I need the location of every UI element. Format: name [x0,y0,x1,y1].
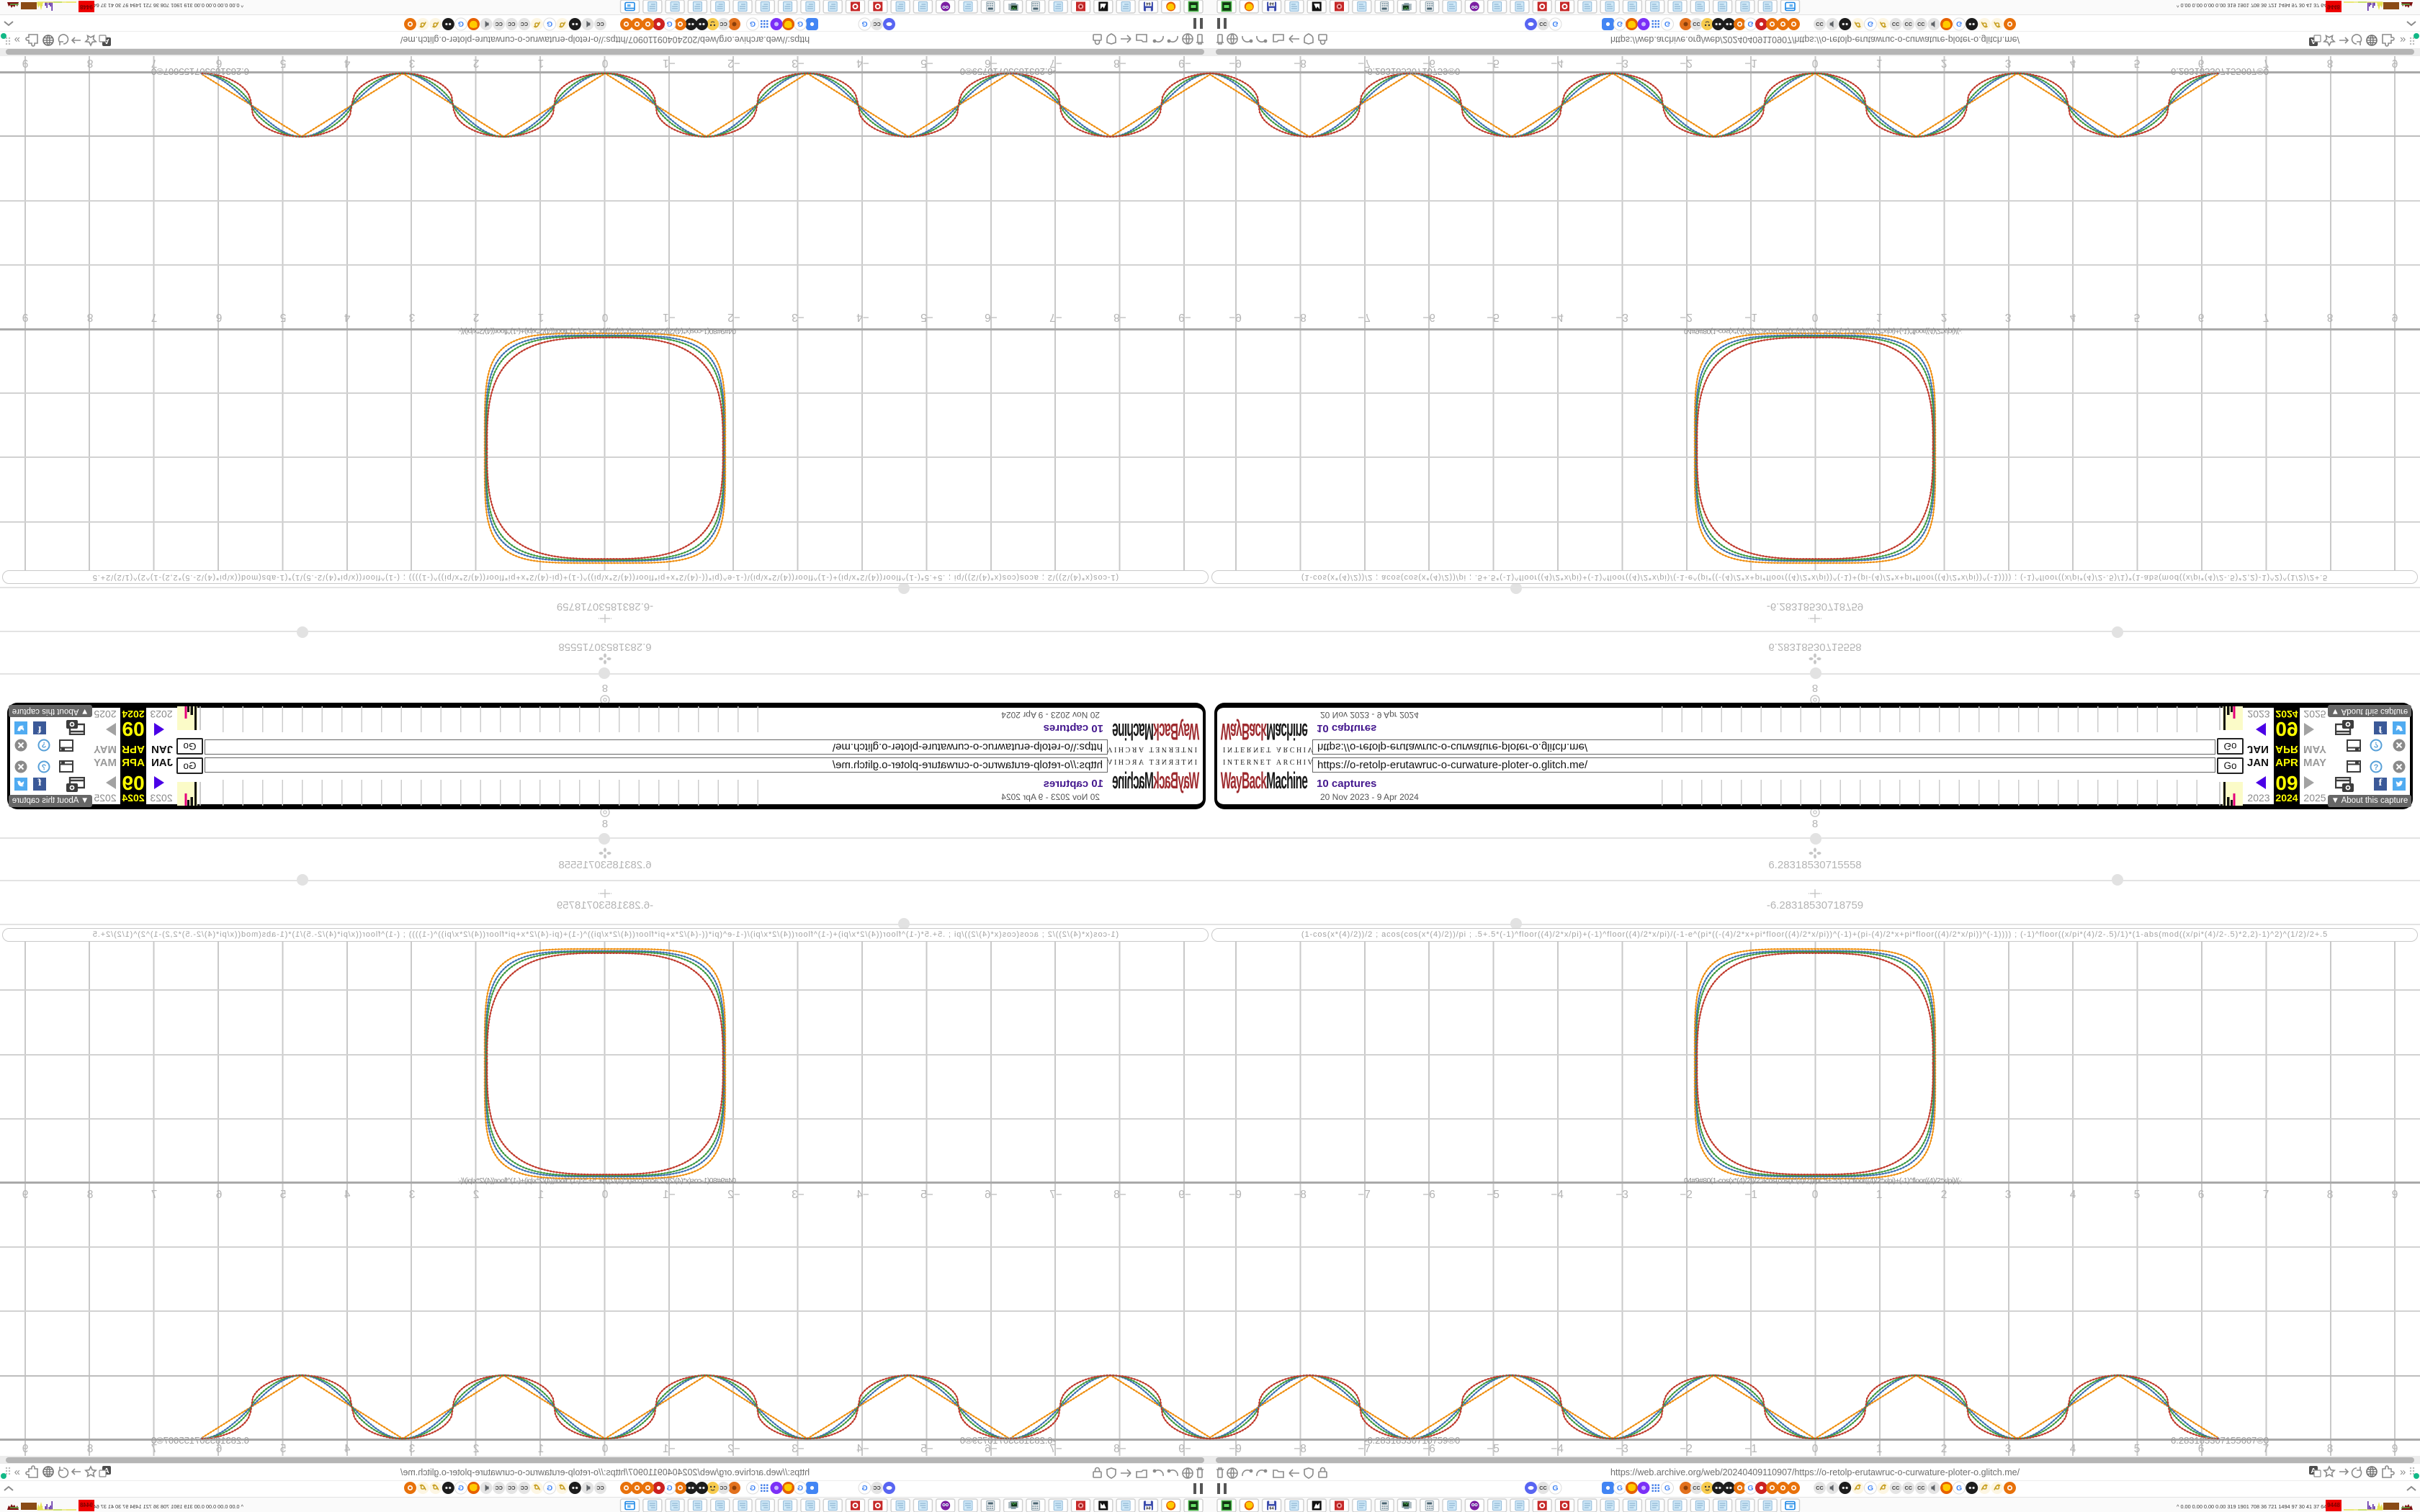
svg-text:64: 64 [1145,1,1150,5]
svg-text:64: 64 [1145,1507,1150,1511]
svg-text:64: 64 [1270,1507,1275,1511]
svg-text:64: 64 [1270,1,1275,5]
